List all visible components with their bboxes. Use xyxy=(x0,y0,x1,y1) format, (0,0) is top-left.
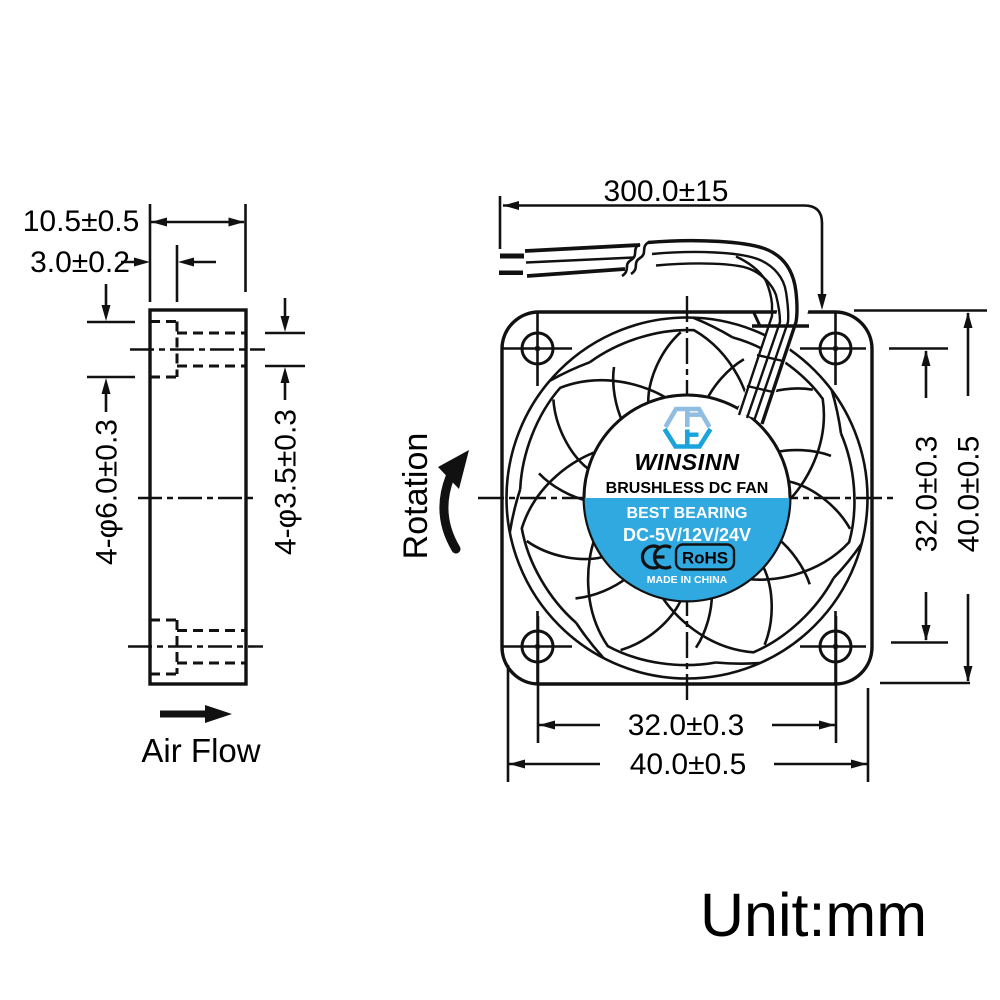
svg-text:RoHS: RoHS xyxy=(682,549,728,568)
svg-text:Air Flow: Air Flow xyxy=(141,732,260,769)
svg-text:WINSINN: WINSINN xyxy=(634,449,740,475)
svg-text:BEST BEARING: BEST BEARING xyxy=(627,505,748,522)
svg-text:3.0±0.2: 3.0±0.2 xyxy=(30,246,130,279)
svg-text:4-φ3.5±0.3: 4-φ3.5±0.3 xyxy=(270,409,303,555)
svg-text:32.0±0.3: 32.0±0.3 xyxy=(628,709,745,742)
svg-text:Rotation: Rotation xyxy=(397,433,435,560)
svg-text:40.0±0.5: 40.0±0.5 xyxy=(953,436,986,553)
svg-text:40.0±0.5: 40.0±0.5 xyxy=(630,748,747,781)
svg-text:32.0±0.3: 32.0±0.3 xyxy=(911,436,944,553)
svg-text:4-φ6.0±0.3: 4-φ6.0±0.3 xyxy=(91,419,124,565)
svg-text:MADE IN CHINA: MADE IN CHINA xyxy=(647,574,728,586)
svg-text:DC-5V/12V/24V: DC-5V/12V/24V xyxy=(623,525,751,545)
svg-text:Unit:mm: Unit:mm xyxy=(700,881,927,949)
svg-text:300.0±15: 300.0±15 xyxy=(604,175,729,208)
svg-text:BRUSHLESS DC FAN: BRUSHLESS DC FAN xyxy=(606,480,769,497)
svg-text:10.5±0.5: 10.5±0.5 xyxy=(23,205,140,238)
